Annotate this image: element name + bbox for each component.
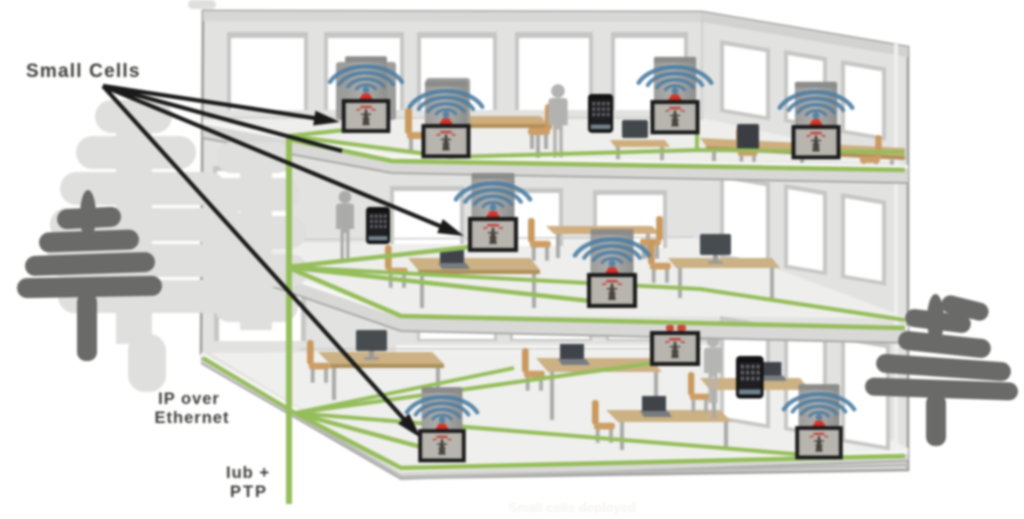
svg-text:Small cells deployed: Small cells deployed (508, 500, 636, 515)
svg-text:PTP: PTP (230, 483, 268, 501)
svg-text:Ethernet: Ethernet (155, 409, 230, 427)
svg-text:Small Cells: Small Cells (26, 61, 141, 82)
svg-text:Iub +: Iub + (226, 464, 270, 482)
svg-text:IP over: IP over (158, 390, 220, 408)
